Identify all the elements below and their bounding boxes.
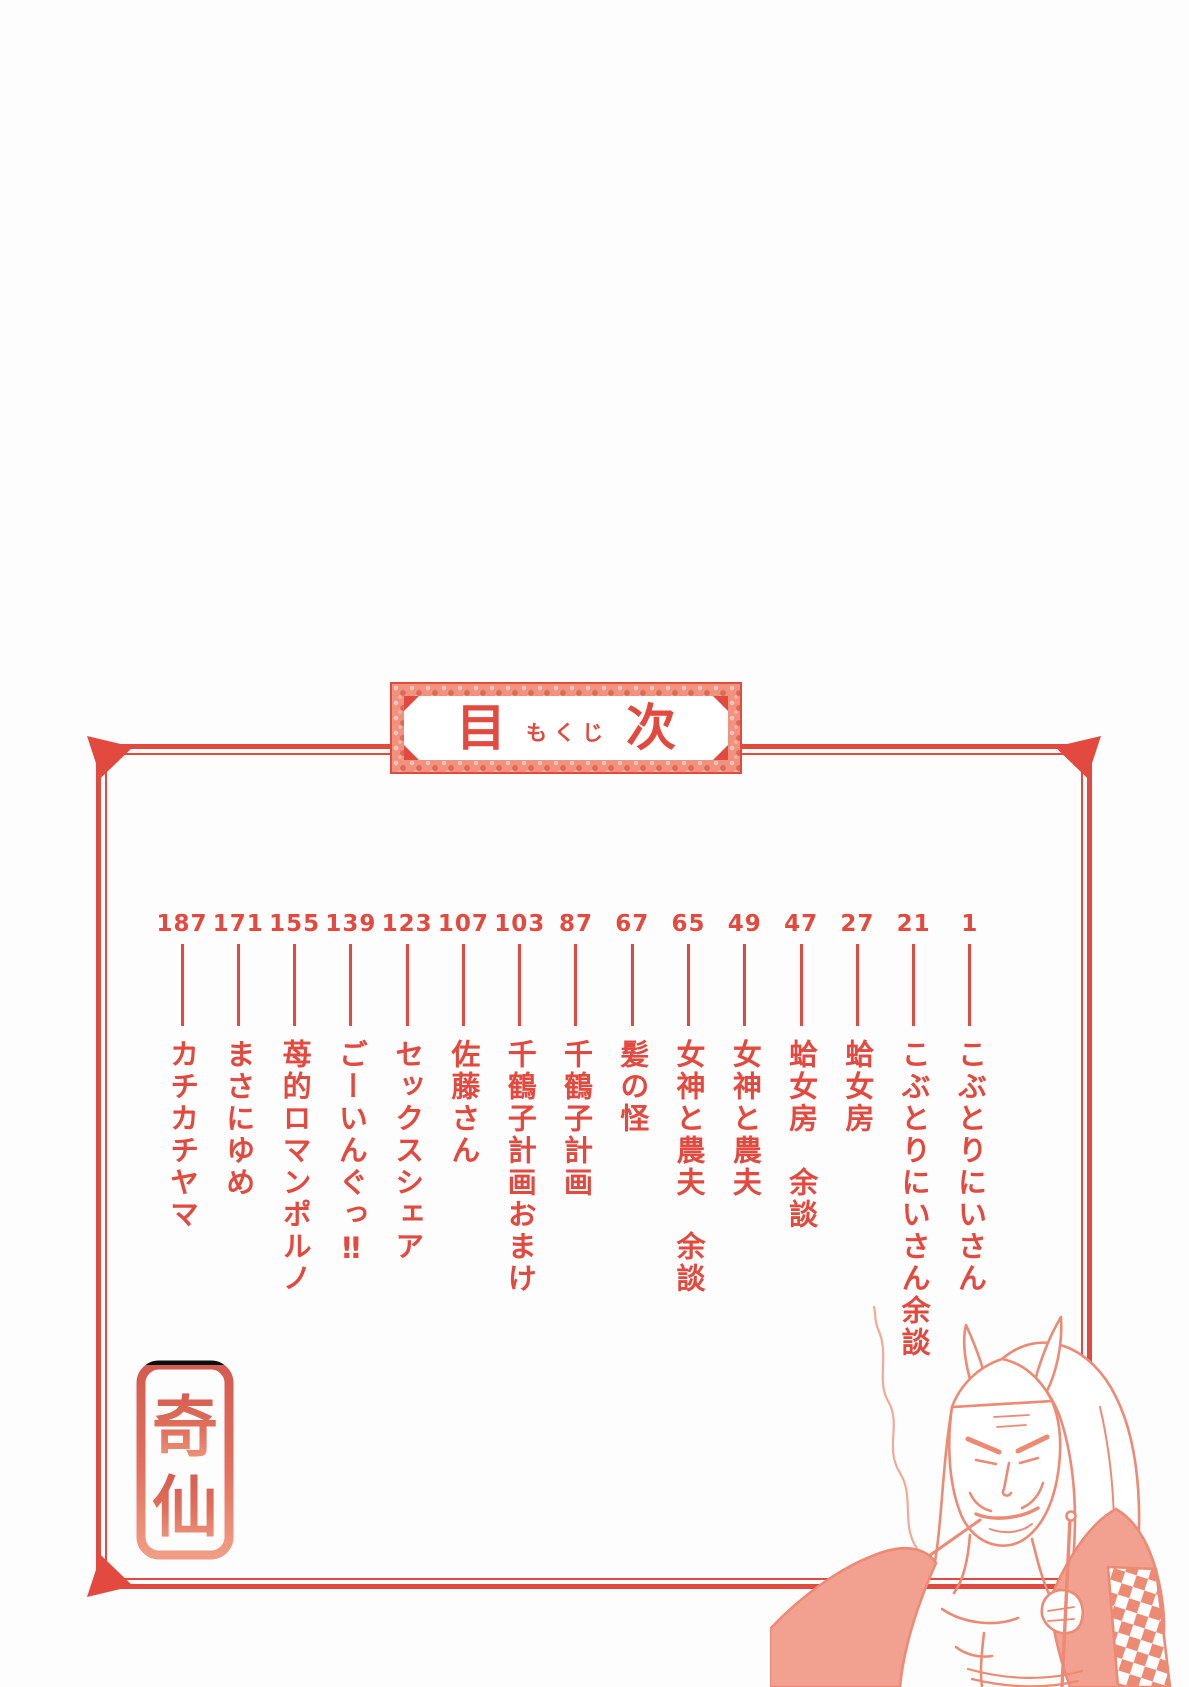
toc-entry-title[interactable]: 女神と農夫 余談 (674, 1039, 703, 1295)
toc-page-number: 107 (438, 912, 489, 937)
toc-leader-line (518, 944, 521, 1026)
toc-entry[interactable]: 107 佐藤さん (438, 912, 488, 1552)
toc-entry[interactable]: 47 蛤女房 余談 (776, 912, 826, 1552)
toc-page-number: 139 (325, 912, 376, 937)
toc-entry-title[interactable]: 蛤女房 (843, 1039, 872, 1135)
toc-entry-title[interactable]: こぶとりにいさん余談 (899, 1039, 928, 1359)
toc-leader-line (687, 944, 690, 1026)
page-title-ruby: もくじ (526, 723, 610, 744)
toc-entry[interactable]: 1 こぶとりにいさん (945, 912, 995, 1552)
toc-page-number: 65 (672, 912, 706, 937)
toc-entry-title[interactable]: セックスシェア (393, 1039, 422, 1263)
toc-entry-title[interactable]: 千鶴子計画 (561, 1039, 590, 1199)
toc-leader-line (237, 944, 240, 1026)
toc-page-number: 49 (728, 912, 762, 937)
title-corner-accent (713, 696, 728, 711)
toc-entry-title[interactable]: カチカチヤマ (168, 1039, 197, 1231)
toc-leader-line (181, 944, 184, 1026)
toc-entry[interactable]: 67 髪の怪 (607, 912, 657, 1552)
toc-entry-title[interactable]: 蛤女房 余談 (787, 1039, 816, 1231)
toc-leader-line (462, 944, 465, 1026)
toc-leader-line (293, 944, 296, 1026)
toc-entry[interactable]: 123 セックスシェア (382, 912, 432, 1552)
toc-columns: 1 こぶとりにいさん 21 こぶとりにいさん余談 27 蛤女房 47 蛤女房 余… (157, 912, 995, 1552)
toc-title-box: 目 もくじ 次 (390, 682, 742, 774)
toc-entry[interactable]: 65 女神と農夫 余談 (664, 912, 714, 1552)
artist-seal-stamp: 奇 仙 (133, 1358, 237, 1564)
toc-title-box-inner: 目 もくじ 次 (404, 696, 728, 760)
toc-leader-line (800, 944, 803, 1026)
toc-entry-title[interactable]: 佐藤さん (449, 1039, 478, 1167)
toc-entry-title[interactable]: 千鶴子計画おまけ (505, 1039, 534, 1295)
toc-entry-title[interactable]: こぶとりにいさん (955, 1039, 984, 1295)
toc-leader-line (406, 944, 409, 1026)
toc-page-number: 155 (269, 912, 320, 937)
toc-entry[interactable]: 27 蛤女房 (832, 912, 882, 1552)
stamp-char-bottom: 仙 (152, 1468, 218, 1546)
oni-kimono-left (770, 1548, 936, 1687)
toc-leader-line (349, 944, 352, 1026)
page-title-right-char: 次 (626, 703, 676, 753)
toc-page-number: 87 (559, 912, 593, 937)
toc-entry[interactable]: 87 千鶴子計画 (551, 912, 601, 1552)
toc-page-number: 171 (213, 912, 264, 937)
toc-leader-line (574, 944, 577, 1026)
toc-leader-line (743, 944, 746, 1026)
toc-leader-line (631, 944, 634, 1026)
toc-entry-title[interactable]: ごーいんぐっ‼ (336, 1039, 365, 1268)
stamp-char-top: 奇 (152, 1388, 218, 1466)
toc-entry[interactable]: 139 ごーいんぐっ‼ (326, 912, 376, 1552)
toc-entry-title[interactable]: 髪の怪 (618, 1039, 647, 1135)
toc-page-number: 103 (494, 912, 545, 937)
toc-page-number: 1 (961, 912, 978, 937)
toc-page-number: 123 (382, 912, 433, 937)
toc-page-number: 187 (157, 912, 208, 937)
toc-entry[interactable]: 21 こぶとりにいさん余談 (889, 912, 939, 1552)
toc-leader-line (856, 944, 859, 1026)
page-title-left-char: 目 (456, 703, 506, 753)
toc-page-number: 21 (897, 912, 931, 937)
toc-page-number: 47 (784, 912, 818, 937)
toc-entry[interactable]: 103 千鶴子計画おまけ (495, 912, 545, 1552)
toc-page-number: 27 (840, 912, 874, 937)
title-corner-accent (404, 696, 419, 711)
toc-entry-title[interactable]: まさにゆめ (224, 1039, 253, 1199)
title-corner-accent (713, 745, 728, 760)
toc-leader-line (968, 944, 971, 1026)
toc-leader-line (912, 944, 915, 1026)
toc-entry[interactable]: 155 苺的ロマンポルノ (270, 912, 320, 1552)
kiseru-bowl (1067, 1512, 1076, 1521)
toc-entry-title[interactable]: 女神と農夫 (730, 1039, 759, 1199)
title-corner-accent (404, 745, 419, 760)
toc-entry-title[interactable]: 苺的ロマンポルノ (280, 1039, 309, 1295)
oni-chest (942, 1609, 1018, 1687)
toc-page-number: 67 (615, 912, 649, 937)
toc-entry[interactable]: 49 女神と農夫 (720, 912, 770, 1552)
